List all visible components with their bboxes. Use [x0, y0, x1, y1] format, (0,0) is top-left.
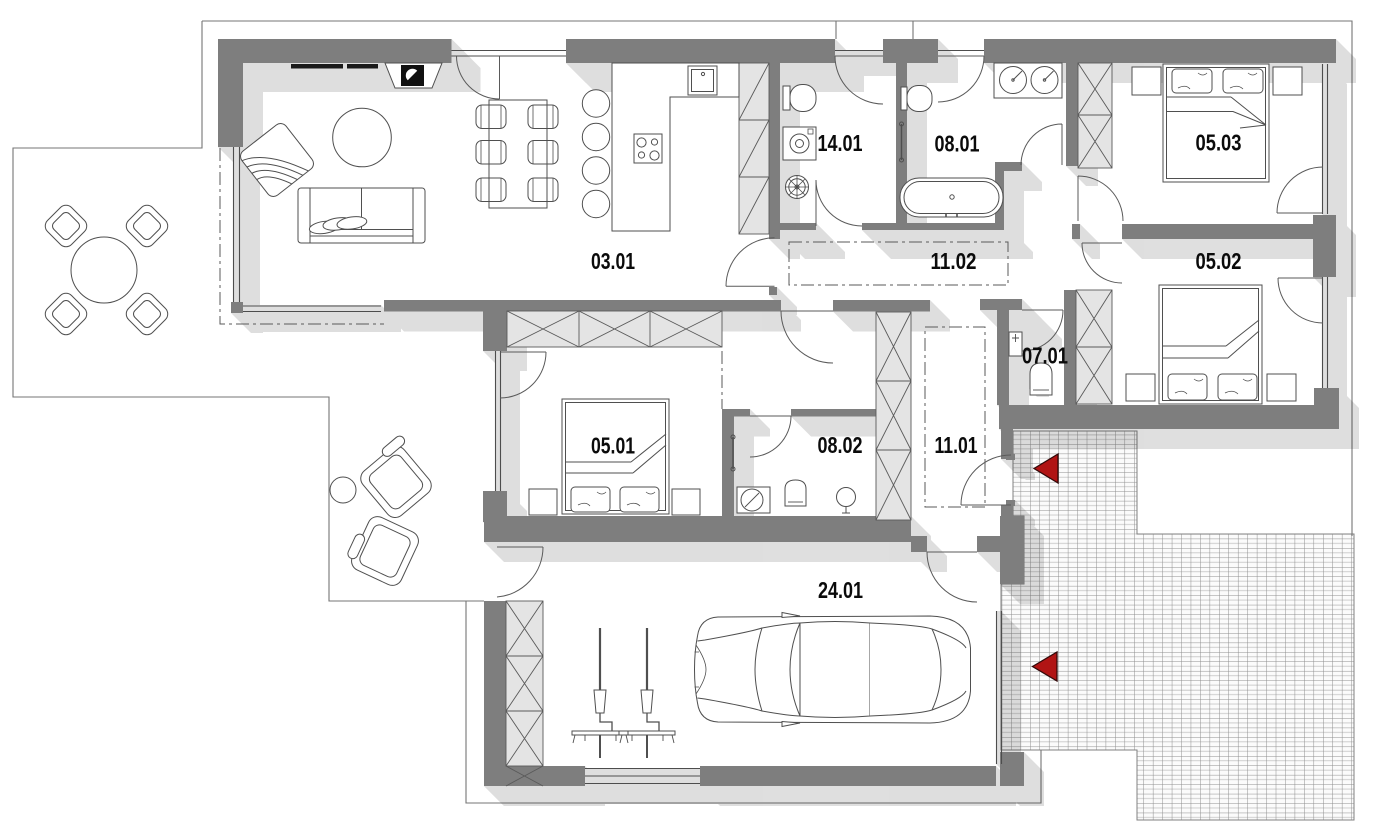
- svg-text:11.02: 11.02: [931, 248, 977, 274]
- svg-text:14.01: 14.01: [818, 130, 863, 156]
- svg-text:08.02: 08.02: [818, 432, 863, 458]
- svg-text:05.01: 05.01: [591, 433, 635, 459]
- svg-text:05.03: 05.03: [1196, 130, 1242, 156]
- svg-text:05.02: 05.02: [1196, 248, 1242, 274]
- svg-text:07.01: 07.01: [1022, 343, 1068, 369]
- svg-text:11.01: 11.01: [935, 432, 978, 458]
- svg-text:08.01: 08.01: [935, 131, 980, 157]
- svg-text:03.01: 03.01: [591, 248, 635, 274]
- svg-text:24.01: 24.01: [818, 577, 863, 603]
